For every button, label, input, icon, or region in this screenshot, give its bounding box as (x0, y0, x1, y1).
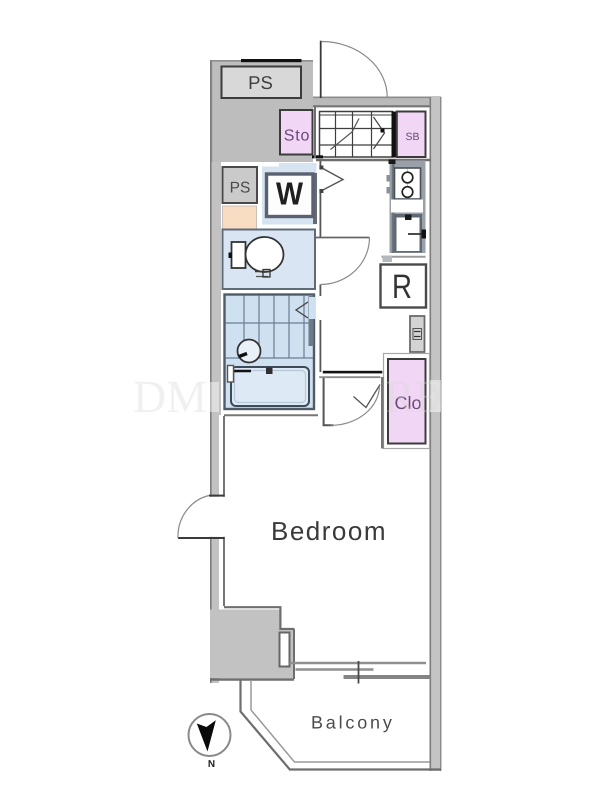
svg-text:Bedroom: Bedroom (271, 516, 387, 546)
svg-text:PS: PS (248, 72, 273, 93)
svg-text:Sto: Sto (284, 128, 310, 145)
svg-text:DM: DM (133, 371, 207, 422)
svg-text:W: W (276, 176, 304, 212)
svg-text:N: N (208, 759, 215, 770)
svg-text:SB: SB (405, 131, 419, 143)
svg-text:R: R (392, 268, 412, 306)
svg-text:PS: PS (230, 180, 251, 197)
svg-text:Balcony: Balcony (311, 713, 395, 733)
